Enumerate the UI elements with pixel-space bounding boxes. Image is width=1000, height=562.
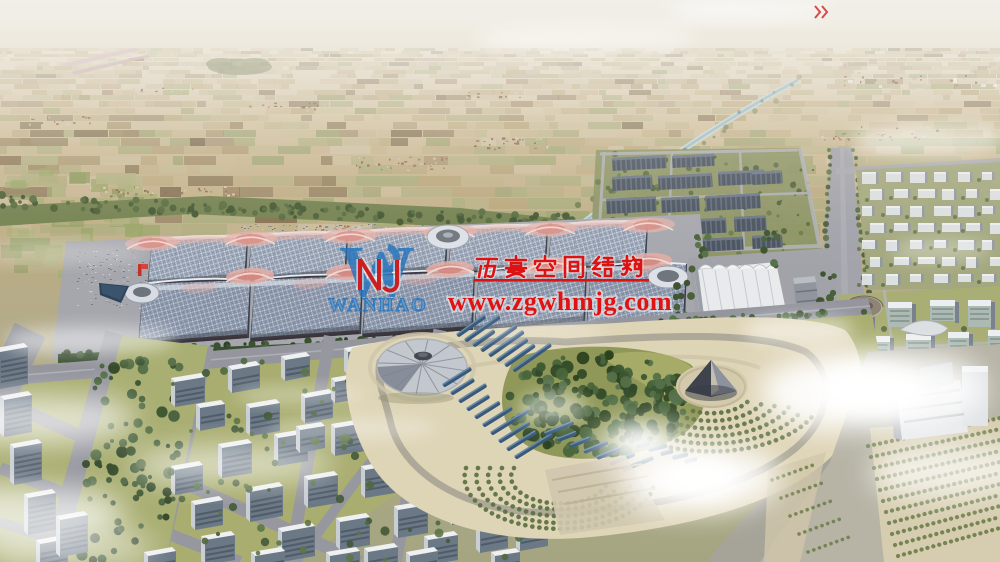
svg-text:WANHAO: WANHAO [328,295,428,316]
svg-text:www.zgwhmjg.com: www.zgwhmjg.com [448,287,672,316]
